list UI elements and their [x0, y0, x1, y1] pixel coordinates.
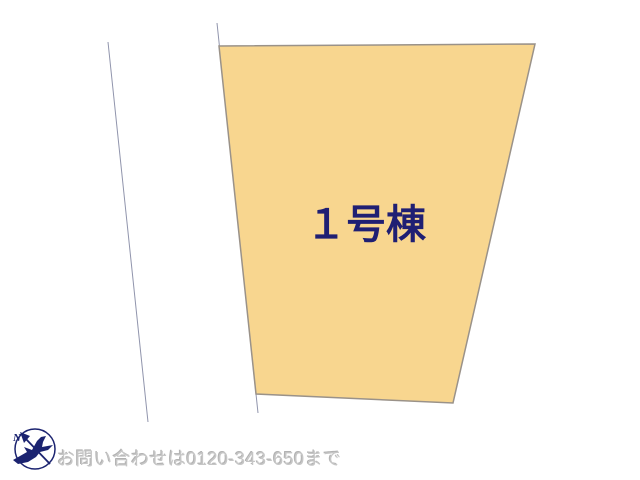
north-label: N	[12, 432, 22, 444]
plot-label: １号棟	[306, 203, 436, 247]
compass-icon: N	[12, 429, 55, 469]
road-line-left	[108, 42, 148, 422]
site-plan: N １号棟 お問い合わせは0120-343-650まで	[0, 0, 640, 480]
contact-text: お問い合わせは0120-343-650まで	[57, 448, 342, 470]
